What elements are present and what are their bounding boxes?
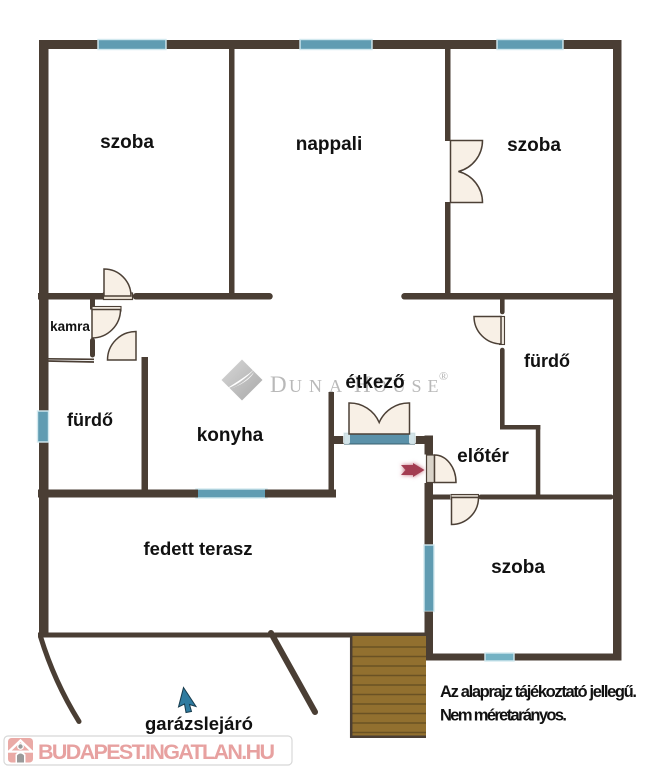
svg-text:előtér: előtér xyxy=(457,446,509,467)
svg-text:szoba: szoba xyxy=(491,557,545,578)
svg-text:konyha: konyha xyxy=(197,425,264,446)
svg-text:Nem méretarányos.: Nem méretarányos. xyxy=(440,707,567,725)
svg-text:nappali: nappali xyxy=(296,134,363,155)
svg-text:szoba: szoba xyxy=(100,132,154,153)
svg-text:BUDAPEST.INGATLAN.HU: BUDAPEST.INGATLAN.HU xyxy=(38,740,275,764)
svg-text:fedett terasz: fedett terasz xyxy=(144,538,253,559)
svg-text:Az alaprajz tájékoztató jelleg: Az alaprajz tájékoztató jellegű. xyxy=(440,683,637,701)
svg-text:UNA: UNA xyxy=(289,376,349,396)
svg-text:szoba: szoba xyxy=(507,135,561,156)
svg-text:étkező: étkező xyxy=(345,372,404,393)
svg-text:garázslejáró: garázslejáró xyxy=(145,713,253,734)
svg-text:fürdő: fürdő xyxy=(67,410,113,430)
svg-text:D: D xyxy=(270,372,287,397)
svg-text:®: ® xyxy=(439,369,448,383)
svg-text:fürdő: fürdő xyxy=(524,351,570,371)
svg-text:kamra: kamra xyxy=(50,319,90,334)
